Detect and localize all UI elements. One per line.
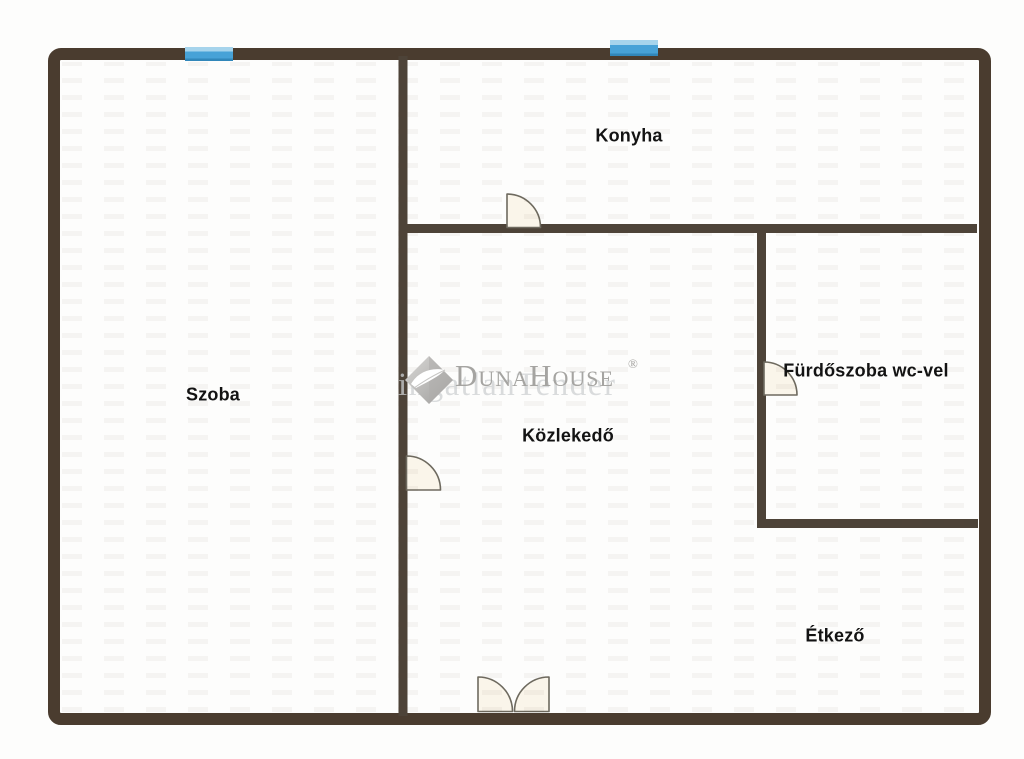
door-szoba <box>407 456 441 490</box>
wall-szoba-kozlekedo <box>399 56 408 716</box>
room-label-szoba: Szoba <box>186 385 240 406</box>
window-frame-highlight <box>185 47 233 52</box>
room-label-etkezo: Étkező <box>805 626 864 647</box>
room-label-kozlekedo: Közlekedő <box>522 426 614 447</box>
window-szoba <box>185 47 233 61</box>
window-frame-shade <box>610 54 658 57</box>
wall-furdoszoba-bottom <box>757 519 978 528</box>
window-konyha <box>610 40 658 56</box>
entrance-double-door-left-leaf <box>478 677 513 712</box>
floor-plan: Szoba Konyha Közlekedő Fürdőszoba wc-vel… <box>0 0 1024 759</box>
door-konyha <box>507 194 541 228</box>
entrance-double-door-right-leaf <box>515 677 550 712</box>
room-label-furdoszoba: Fürdőszoba wc-vel <box>783 361 948 382</box>
room-label-konyha: Konyha <box>595 126 662 147</box>
window-frame-shade <box>185 59 233 62</box>
wall-konyha-kozlekedo <box>403 224 977 233</box>
window-frame-highlight <box>610 40 658 45</box>
